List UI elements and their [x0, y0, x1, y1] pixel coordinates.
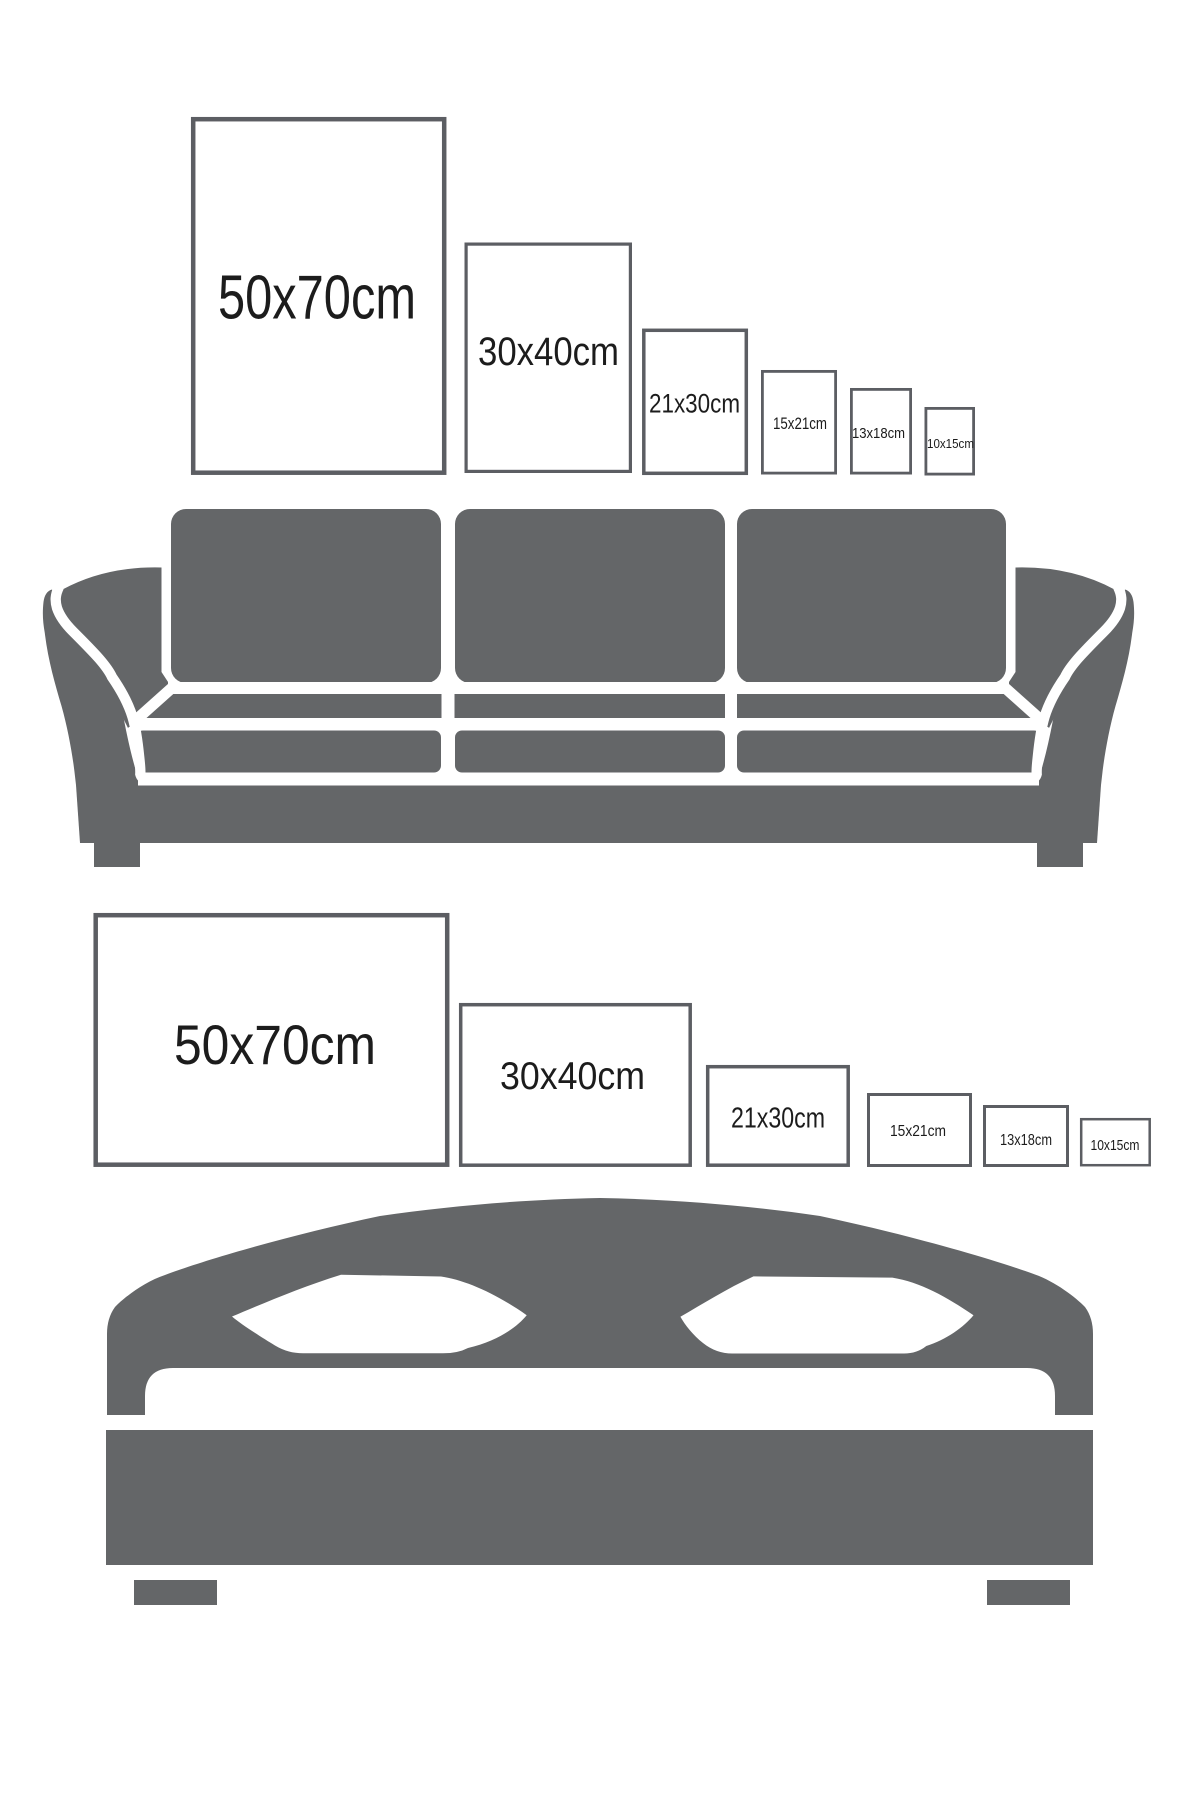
svg-text:15x21cm: 15x21cm: [890, 1123, 946, 1140]
svg-text:10x15cm: 10x15cm: [1091, 1137, 1140, 1154]
svg-text:15x21cm: 15x21cm: [773, 415, 827, 433]
svg-text:50x70cm: 50x70cm: [218, 264, 416, 333]
svg-text:21x30cm: 21x30cm: [649, 389, 740, 419]
svg-text:30x40cm: 30x40cm: [478, 330, 619, 374]
svg-text:21x30cm: 21x30cm: [731, 1103, 825, 1135]
svg-text:13x18cm: 13x18cm: [852, 425, 905, 442]
svg-text:10x15cm: 10x15cm: [927, 437, 974, 451]
svg-text:50x70cm: 50x70cm: [174, 1013, 376, 1076]
svg-text:30x40cm: 30x40cm: [500, 1055, 645, 1098]
svg-text:13x18cm: 13x18cm: [1000, 1132, 1052, 1149]
